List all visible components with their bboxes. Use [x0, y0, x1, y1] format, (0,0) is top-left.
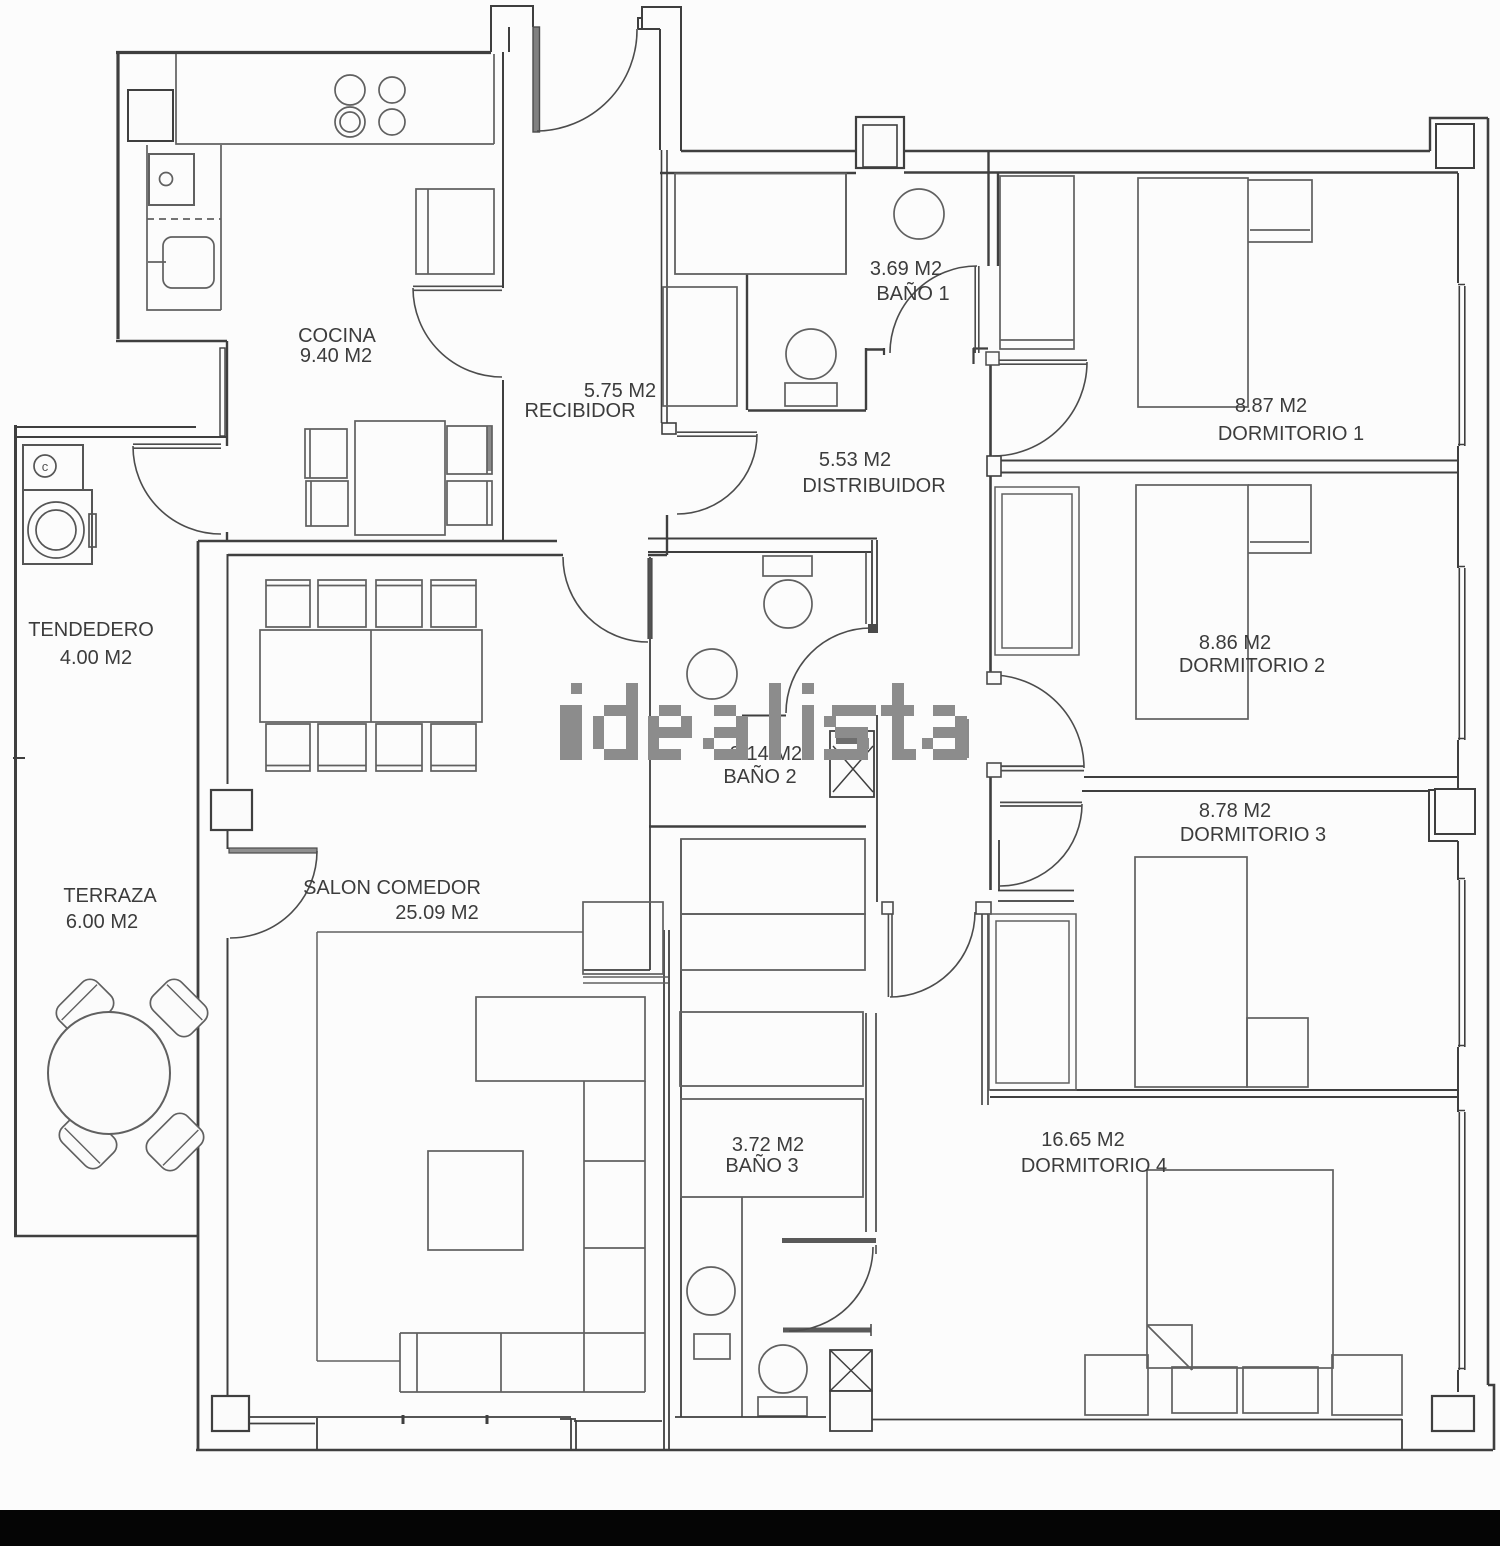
svg-text:TERRAZA: TERRAZA	[63, 885, 157, 907]
svg-text:5.53 M2: 5.53 M2	[819, 449, 891, 471]
svg-text:5.75 M2: 5.75 M2	[584, 380, 656, 402]
svg-text:DISTRIBUIDOR: DISTRIBUIDOR	[802, 475, 945, 497]
svg-text:8.78 M2: 8.78 M2	[1199, 800, 1271, 822]
svg-text:8.86 M2: 8.86 M2	[1199, 632, 1271, 654]
svg-text:DORMITORIO 1: DORMITORIO 1	[1218, 423, 1364, 445]
svg-text:BAÑO 1: BAÑO 1	[876, 281, 949, 305]
svg-text:9.40 M2: 9.40 M2	[300, 345, 372, 367]
svg-text:DORMITORIO 3: DORMITORIO 3	[1180, 824, 1326, 846]
svg-text:COCINA: COCINA	[298, 325, 376, 347]
svg-text:SALON COMEDOR: SALON COMEDOR	[303, 877, 481, 899]
svg-text:8.87 M2: 8.87 M2	[1235, 395, 1307, 417]
svg-text:TENDEDERO: TENDEDERO	[28, 619, 154, 641]
svg-text:DORMITORIO 4: DORMITORIO 4	[1021, 1155, 1167, 1177]
svg-text:6.00 M2: 6.00 M2	[66, 911, 138, 933]
svg-text:BAÑO 2: BAÑO 2	[723, 764, 796, 788]
svg-text:RECIBIDOR: RECIBIDOR	[524, 400, 635, 422]
svg-text:4.00 M2: 4.00 M2	[60, 647, 132, 669]
svg-text:c: c	[42, 459, 49, 474]
svg-text:16.65 M2: 16.65 M2	[1041, 1129, 1124, 1151]
svg-text:3.72 M2: 3.72 M2	[732, 1134, 804, 1156]
svg-text:DORMITORIO 2: DORMITORIO 2	[1179, 655, 1325, 677]
svg-text:25.09 M2: 25.09 M2	[395, 902, 478, 924]
svg-text:3.69 M2: 3.69 M2	[870, 258, 942, 280]
svg-text:BAÑO 3: BAÑO 3	[725, 1153, 798, 1177]
